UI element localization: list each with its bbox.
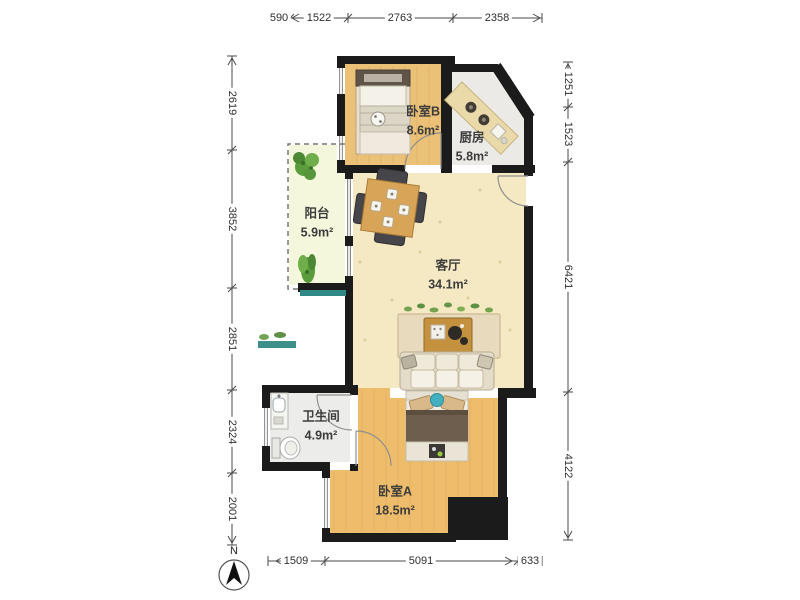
dimension-label: 2619 <box>226 88 238 118</box>
toilet <box>272 437 300 459</box>
dimension-label: 1509 <box>281 555 311 567</box>
dimension-label: 590 <box>267 12 291 24</box>
dimension-label: 4122 <box>562 451 574 481</box>
dimension-label: 1523 <box>562 119 574 149</box>
dimension-label: 2358 <box>482 12 512 24</box>
dimension-label: 5091 <box>406 555 436 567</box>
sofa <box>400 352 494 390</box>
bathroom-window <box>262 408 270 446</box>
balcony-bench <box>300 290 346 296</box>
outside-hedge <box>258 332 296 348</box>
bedroom-a-bed <box>406 391 468 461</box>
dimension-lines-left <box>227 56 237 545</box>
compass-icon <box>219 560 249 590</box>
dimension-label: 2763 <box>385 12 415 24</box>
bedroom-a-window <box>322 478 330 528</box>
dimension-label: 3852 <box>226 204 238 234</box>
dimension-label: 2851 <box>226 324 238 354</box>
dimension-label: 633 <box>518 555 542 567</box>
dimension-label: 2324 <box>226 417 238 447</box>
coffee-table <box>424 318 472 354</box>
bedroom-b-bed <box>356 70 410 154</box>
floorplan-canvas: 阳台 5.9m² 卧室B 8.6m² 厨房 5.8m² 客厅 34.1m² 卫生… <box>0 0 800 600</box>
bathroom-sink <box>271 393 288 429</box>
dimension-label: 1251 <box>562 69 574 99</box>
balcony-sliding-door <box>345 179 353 276</box>
dimension-label: 6421 <box>562 262 574 292</box>
floorplan-graphics <box>0 0 800 600</box>
compass-n-label: N <box>230 545 238 557</box>
dimension-label: 1522 <box>304 12 334 24</box>
dimension-label: 2001 <box>226 494 238 524</box>
